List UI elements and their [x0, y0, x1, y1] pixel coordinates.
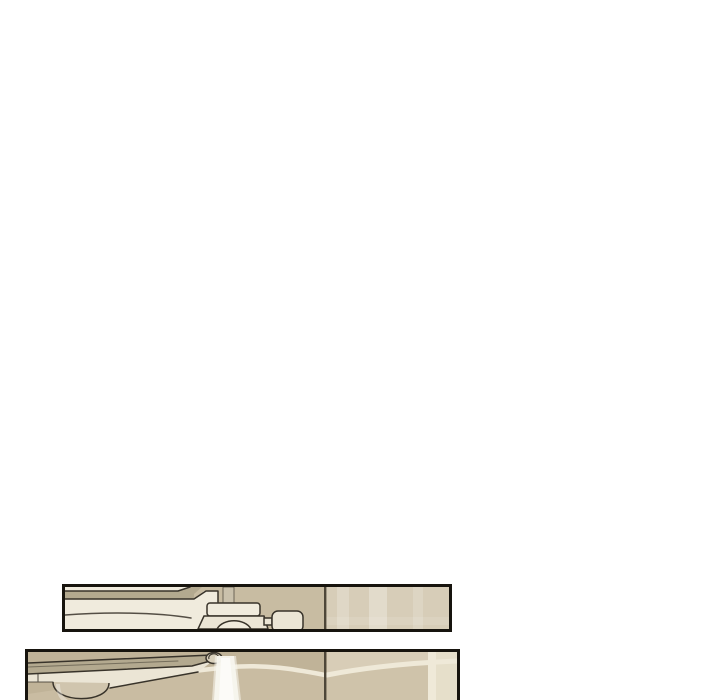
- wall-corner-line: [324, 652, 326, 700]
- comic-panel-1: [62, 584, 452, 632]
- running-faucet-illustration: [28, 652, 457, 700]
- faucet-fixture-illustration: [65, 587, 449, 629]
- wall-corner-line: [324, 587, 326, 629]
- side-knob-block: [272, 611, 303, 629]
- water-stream: [212, 656, 241, 700]
- comic-panel-2: [25, 649, 460, 700]
